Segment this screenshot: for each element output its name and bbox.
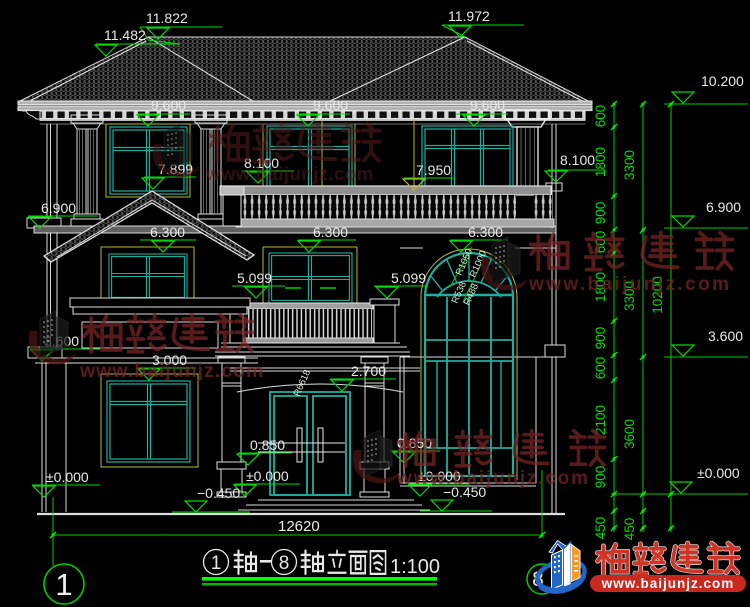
svg-text:3600: 3600	[622, 419, 637, 449]
svg-text:±0.000: ±0.000	[697, 465, 740, 481]
svg-text:9.600: 9.600	[470, 97, 505, 113]
svg-text:−0.450: −0.450	[197, 485, 240, 501]
svg-text:6.300: 6.300	[468, 224, 503, 240]
svg-text:600: 600	[593, 357, 608, 380]
svg-text:www.baijunjz.com: www.baijunjz.com	[205, 163, 374, 184]
svg-text:2.700: 2.700	[351, 363, 386, 379]
svg-text:5.099: 5.099	[391, 270, 426, 286]
svg-text:www.baijunjz.com: www.baijunjz.com	[396, 468, 590, 489]
svg-text:1800: 1800	[593, 147, 608, 177]
svg-text:8.100: 8.100	[560, 152, 595, 168]
svg-text:1:100: 1:100	[390, 556, 440, 578]
svg-text:6.900: 6.900	[706, 199, 741, 215]
svg-text:9.600: 9.600	[313, 97, 348, 113]
svg-text:6.900: 6.900	[41, 200, 76, 216]
svg-text:450: 450	[622, 518, 637, 541]
svg-text:12620: 12620	[278, 518, 320, 535]
svg-text:11.822: 11.822	[146, 10, 188, 26]
svg-text:3300: 3300	[622, 150, 637, 180]
svg-text:1: 1	[55, 567, 72, 602]
svg-text:0.850: 0.850	[250, 437, 285, 453]
svg-text:www.baijunjz.com: www.baijunjz.com	[601, 576, 735, 591]
svg-text:±0.000: ±0.000	[46, 469, 89, 485]
svg-text:5.099: 5.099	[237, 270, 272, 286]
svg-text:1: 1	[211, 553, 222, 574]
svg-text:3.600: 3.600	[708, 328, 743, 344]
svg-text:8: 8	[279, 553, 290, 574]
svg-text:6.300: 6.300	[313, 224, 348, 240]
svg-text:450: 450	[593, 517, 608, 540]
svg-text:7.950: 7.950	[416, 162, 451, 178]
svg-text:±0.000: ±0.000	[246, 468, 289, 484]
svg-text:600: 600	[593, 105, 608, 128]
svg-text:11.972: 11.972	[448, 8, 490, 24]
svg-text:6.300: 6.300	[150, 224, 185, 240]
svg-text:www.baijunjz.com: www.baijunjz.com	[528, 274, 731, 295]
svg-text:900: 900	[593, 466, 608, 489]
svg-text:10.200: 10.200	[701, 73, 744, 89]
svg-text:900: 900	[593, 327, 608, 350]
svg-text:9.600: 9.600	[151, 97, 186, 113]
svg-text:900: 900	[593, 202, 608, 225]
svg-text:www.baijunjz.com: www.baijunjz.com	[79, 360, 264, 382]
svg-text:11.482: 11.482	[104, 27, 146, 43]
